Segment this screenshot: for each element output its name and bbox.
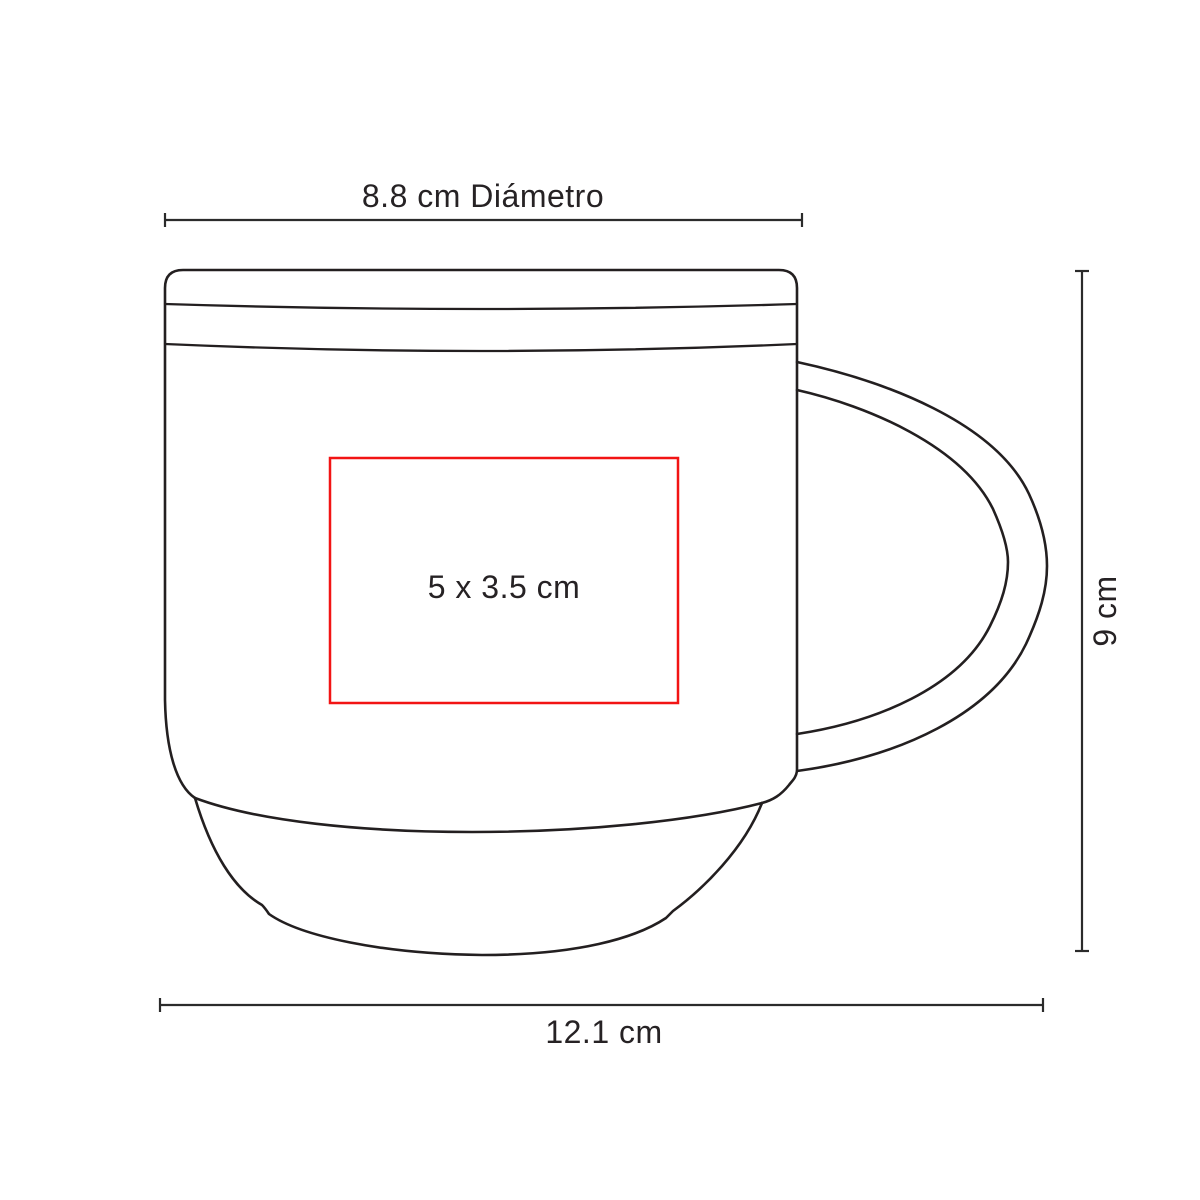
mug-dimension-diagram: 8.8 cm Diámetro 9 cm 12.1 cm (0, 0, 1200, 1200)
print-area-label: 5 x 3.5 cm (428, 569, 581, 605)
mug-handle-inner (797, 390, 1008, 734)
top-dimension-label: 8.8 cm Diámetro (362, 178, 604, 214)
mug-rim-upper-line (165, 304, 797, 309)
mug-drawing (165, 270, 1047, 955)
mug-base-outline (195, 798, 762, 955)
right-dimension-label: 9 cm (1087, 575, 1123, 646)
top-dimension: 8.8 cm Diámetro (165, 178, 802, 227)
bottom-dimension-label: 12.1 cm (545, 1014, 662, 1050)
right-dimension: 9 cm (1075, 271, 1123, 951)
mug-rim-lower-line (165, 344, 797, 351)
mug-base-joint-arc (195, 798, 762, 832)
print-area: 5 x 3.5 cm (330, 458, 678, 703)
bottom-dimension: 12.1 cm (160, 998, 1043, 1050)
diagram-canvas: 8.8 cm Diámetro 9 cm 12.1 cm (0, 0, 1200, 1200)
mug-handle-outer (797, 362, 1047, 771)
